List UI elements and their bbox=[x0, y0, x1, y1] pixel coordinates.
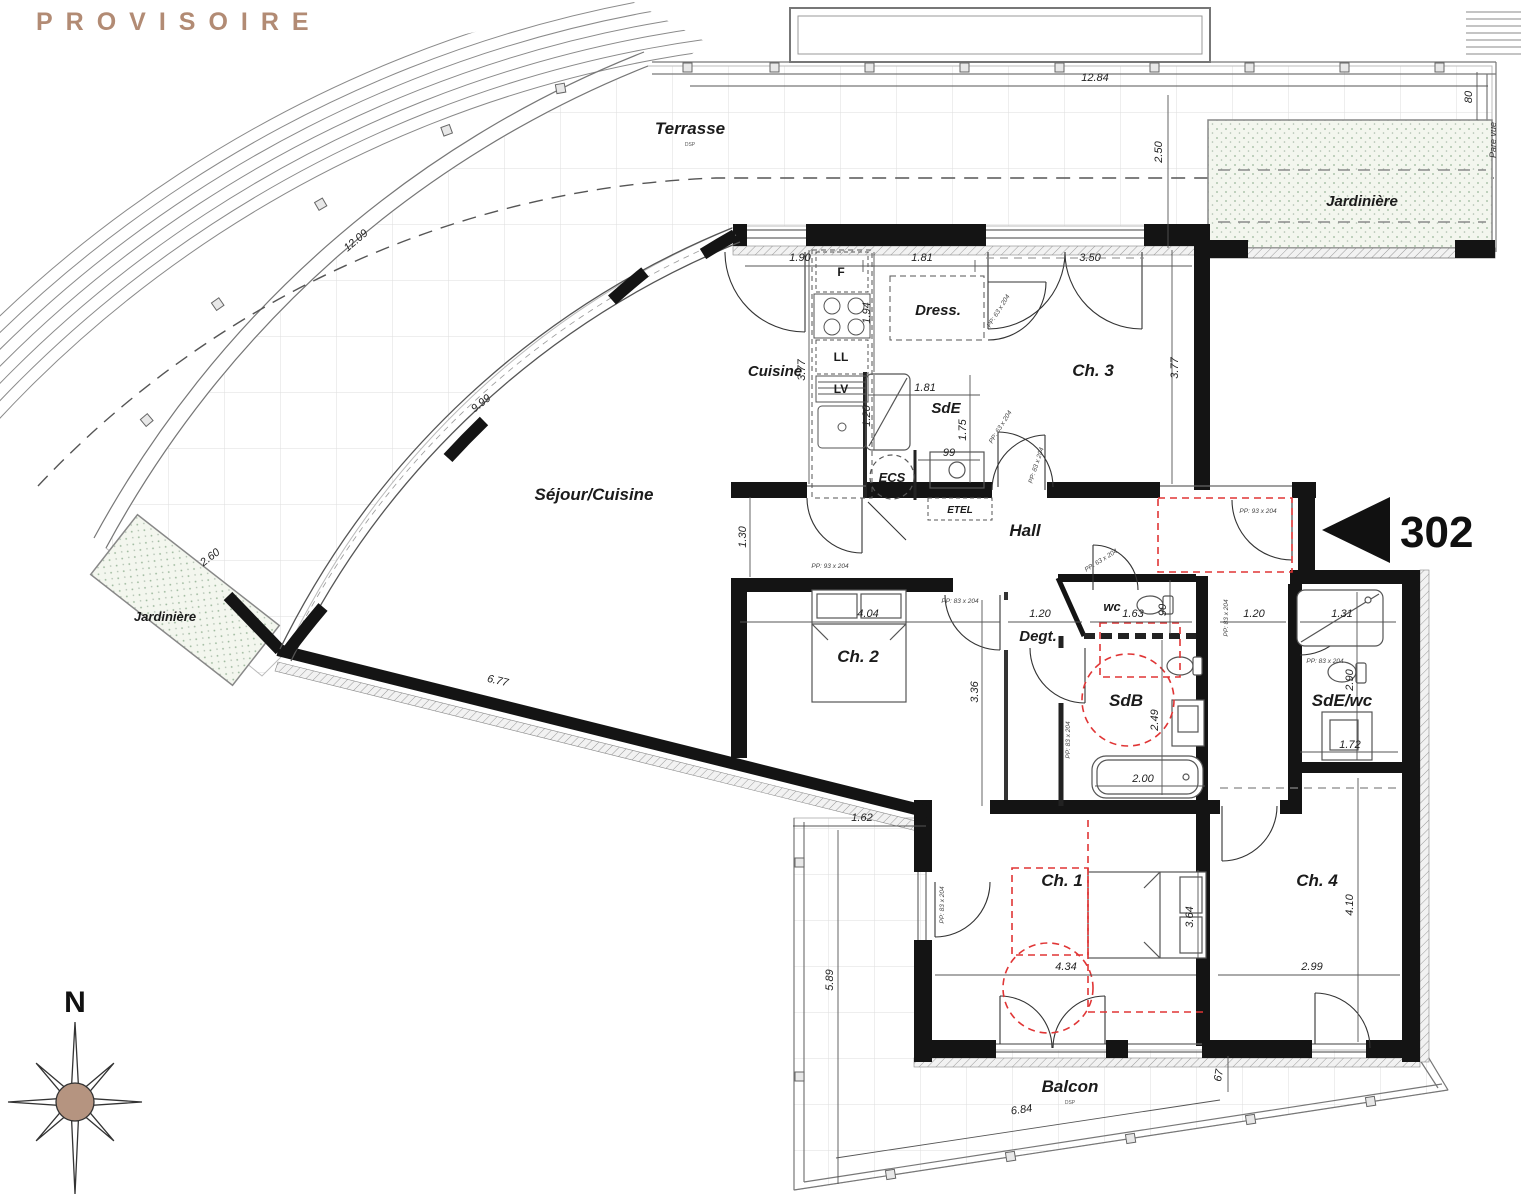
dim-balc-left: 1.62 bbox=[851, 812, 872, 824]
dim-ch3-h: 3.77 bbox=[1169, 356, 1181, 378]
dim-degt-w: 1.20 bbox=[1029, 608, 1051, 620]
unit-number: 302 bbox=[1400, 508, 1473, 557]
dim-ch1-w: 4.34 bbox=[1055, 961, 1076, 973]
dim-sdb-h: 2.49 bbox=[1149, 709, 1161, 731]
dim-corridor-w: 1.20 bbox=[1243, 608, 1265, 620]
dim-shower-w: 1.31 bbox=[1331, 608, 1352, 620]
door-label-hall: PP: 93 x 204 bbox=[811, 563, 849, 570]
dim-sdewc-h: 2.90 bbox=[1344, 668, 1356, 691]
room-terrasse: Terrasse bbox=[655, 119, 725, 138]
room-jardiniere-top: Jardinière bbox=[1326, 193, 1398, 210]
room-wc: wc bbox=[1103, 599, 1121, 614]
dim-sdewc-w: 1.72 bbox=[1339, 739, 1360, 751]
compass-north-label: N bbox=[64, 986, 86, 1019]
dim-terrace-depth: 2.50 bbox=[1153, 140, 1165, 163]
door-label-ch1: PP: 83 x 204 bbox=[939, 886, 946, 924]
dim-balc-h: 5.89 bbox=[824, 969, 836, 990]
room-sdewc: SdE/wc bbox=[1312, 691, 1373, 710]
watermark-provisoire: PROVISOIRE bbox=[36, 8, 322, 36]
room-sdb: SdB bbox=[1109, 691, 1143, 710]
floor-plan-page: 302 12.84 2. bbox=[0, 0, 1521, 1200]
floor-plan: 302 12.84 2. bbox=[0, 0, 1521, 1200]
door-label-entrance: PP: 93 x 204 bbox=[1239, 508, 1277, 515]
dim-sde-w2: 99 bbox=[943, 447, 955, 459]
dim-sde-h2: 1.75 bbox=[957, 418, 969, 440]
room-cuisine: Cuisine bbox=[748, 363, 802, 380]
jardiniere-top-right bbox=[1208, 120, 1495, 258]
dim-cuisine-w: 1.90 bbox=[789, 252, 811, 264]
room-jardiniere-left: Jardinière bbox=[134, 609, 196, 624]
skylight-rect bbox=[790, 8, 1210, 62]
dim-ch2-w: 4.04 bbox=[857, 608, 878, 620]
label-ecs: ECS bbox=[879, 470, 906, 485]
door-label-corridor: PP: 83 x 204 bbox=[1223, 599, 1230, 637]
door-label-ch2: PP: 83 x 204 bbox=[941, 598, 979, 605]
room-sde: SdE bbox=[931, 400, 961, 417]
room-sejour: Séjour/Cuisine bbox=[534, 485, 653, 504]
label-dishwasher: LV bbox=[834, 382, 848, 396]
dim-dress-w: 1.81 bbox=[911, 252, 932, 264]
dim-dress-h: 1.94 bbox=[861, 302, 873, 323]
label-etel: ETEL bbox=[947, 505, 973, 516]
dim-pare-vue: 80 bbox=[1463, 90, 1475, 103]
room-dress: Dress. bbox=[915, 302, 961, 319]
dim-niche: 1.30 bbox=[737, 525, 749, 547]
label-fridge: F bbox=[837, 265, 844, 279]
ch2-bed bbox=[812, 590, 906, 702]
label-washer: LL bbox=[834, 350, 849, 364]
room-ch2: Ch. 2 bbox=[837, 647, 879, 666]
door-label-sdewc: PP: 83 x 204 bbox=[1306, 658, 1344, 665]
dim-wc-w: 1.63 bbox=[1122, 608, 1144, 620]
room-balcon: Balcon bbox=[1042, 1077, 1099, 1096]
dim-ch1-h: 3.64 bbox=[1184, 906, 1196, 927]
pare-vue-label: Pare vue bbox=[1488, 122, 1498, 158]
dim-ch3-w: 3.50 bbox=[1079, 252, 1101, 264]
door-label-sdb: PP: 83 x 204 bbox=[1065, 721, 1072, 759]
dim-terrace-width: 12.84 bbox=[1081, 72, 1109, 84]
room-terrasse-sub: DSP bbox=[685, 142, 696, 148]
room-ch4: Ch. 4 bbox=[1296, 871, 1338, 890]
dim-bath-w: 2.00 bbox=[1131, 773, 1154, 785]
dim-sde-h1: 1.20 bbox=[861, 404, 873, 426]
room-ch1: Ch. 1 bbox=[1041, 871, 1083, 890]
dim-ch4-h: 4.10 bbox=[1344, 893, 1356, 915]
dim-ch2-h: 3.36 bbox=[969, 680, 981, 702]
dim-ch4-w: 2.99 bbox=[1300, 961, 1322, 973]
room-ch3: Ch. 3 bbox=[1072, 361, 1114, 380]
dim-wc-d: 90 bbox=[1157, 603, 1169, 616]
room-degt: Degt. bbox=[1019, 628, 1057, 645]
room-hall: Hall bbox=[1009, 521, 1041, 540]
dim-sde-w: 1.81 bbox=[914, 382, 935, 394]
room-balcon-sub: DSP bbox=[1065, 1100, 1076, 1106]
